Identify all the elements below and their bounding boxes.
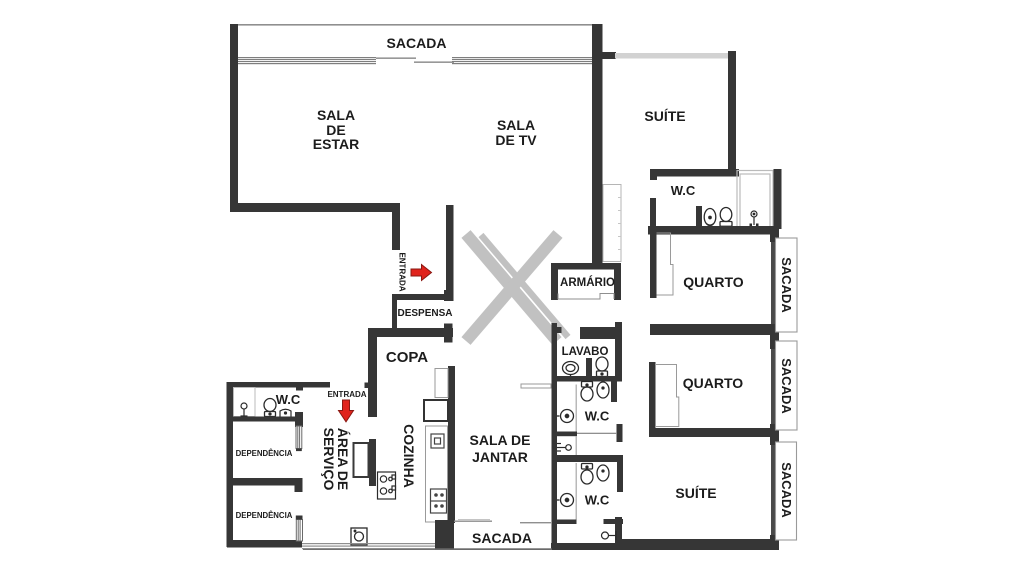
svg-text:ARMÁRIO: ARMÁRIO xyxy=(560,276,615,289)
svg-text:COZINHA: COZINHA xyxy=(401,424,417,488)
svg-text:SUÍTE: SUÍTE xyxy=(644,108,685,124)
svg-text:DEPENDÊNCIA: DEPENDÊNCIA xyxy=(236,511,293,520)
svg-text:DESPENSA: DESPENSA xyxy=(397,308,452,319)
svg-text:ENTRADA: ENTRADA xyxy=(327,390,366,399)
svg-text:DEPENDÊNCIA: DEPENDÊNCIA xyxy=(236,449,293,458)
svg-text:LAVABO: LAVABO xyxy=(562,346,609,358)
svg-text:W.C: W.C xyxy=(671,183,696,198)
svg-text:DE TV: DE TV xyxy=(495,132,537,148)
svg-text:SERVIÇO: SERVIÇO xyxy=(321,428,337,491)
svg-text:SACADA: SACADA xyxy=(779,257,794,313)
svg-text:SACADA: SACADA xyxy=(779,462,794,518)
svg-text:QUARTO: QUARTO xyxy=(683,274,744,290)
svg-text:W.C: W.C xyxy=(276,392,301,407)
svg-text:ENTRADA: ENTRADA xyxy=(398,252,407,291)
svg-text:W.C: W.C xyxy=(585,409,610,424)
svg-text:COPA: COPA xyxy=(386,349,428,366)
svg-text:SACADA: SACADA xyxy=(387,35,447,51)
svg-text:ESTAR: ESTAR xyxy=(313,136,359,152)
svg-text:SACADA: SACADA xyxy=(779,358,794,414)
svg-text:SALA: SALA xyxy=(497,117,535,133)
svg-text:SACADA: SACADA xyxy=(472,530,532,546)
svg-text:W.C: W.C xyxy=(585,493,610,508)
svg-text:SUÍTE: SUÍTE xyxy=(675,485,716,501)
svg-text:SALA DE: SALA DE xyxy=(470,432,531,448)
svg-text:JANTAR: JANTAR xyxy=(472,449,528,465)
svg-text:QUARTO: QUARTO xyxy=(683,375,744,391)
svg-text:SALA: SALA xyxy=(317,107,355,123)
